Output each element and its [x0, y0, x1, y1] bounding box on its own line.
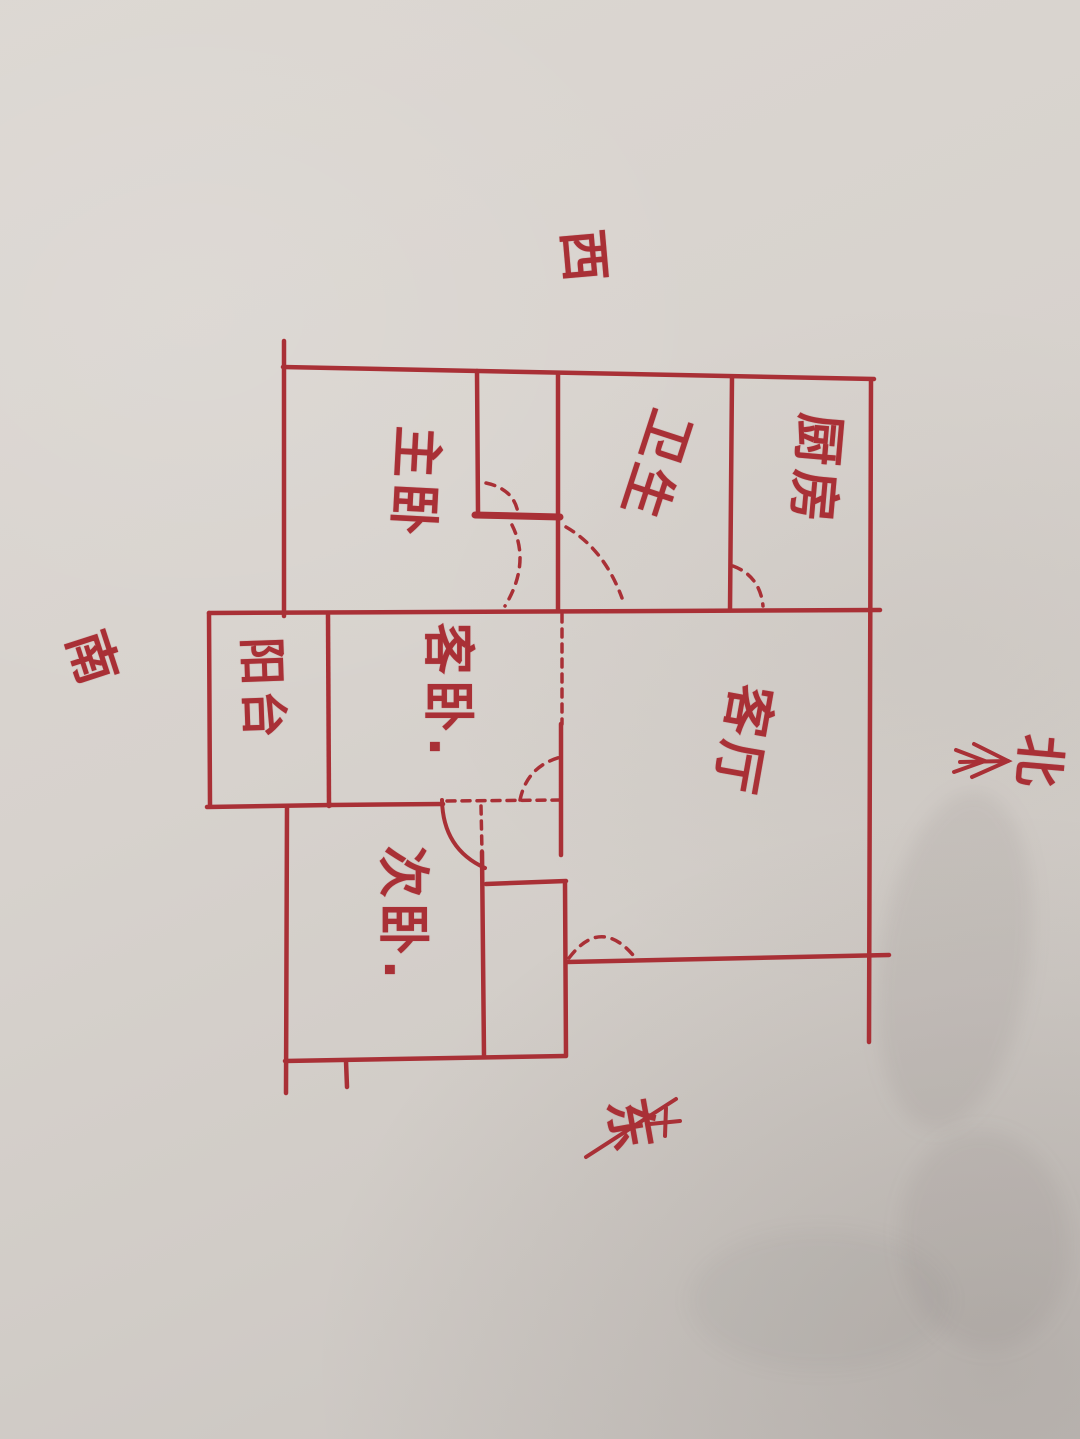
wall-nook-left	[477, 371, 478, 512]
wall-second-left	[286, 806, 287, 1093]
compass-west: 西	[555, 227, 612, 288]
door-arc-entrance	[569, 937, 633, 958]
door-arc-nook	[486, 483, 518, 513]
door-arc-guest	[520, 757, 561, 800]
wall-alcove-right	[565, 882, 566, 1056]
floor-plan-photo: 主卧 卫生 厨房 阳台 客卧. 客厅 次卧. 西 南 北 东	[0, 0, 1080, 1439]
compass-north: 北	[1010, 732, 1067, 793]
wall-top	[283, 367, 874, 379]
wall-balcony-left	[209, 613, 210, 806]
wall-second-right-open	[481, 806, 482, 852]
wall-second-bottom	[285, 1056, 565, 1061]
label-master-bedroom: 主卧	[385, 425, 443, 542]
north-arrow-icon	[954, 744, 1008, 777]
wall-second-right	[482, 852, 484, 1056]
wall-living-bottom	[567, 955, 889, 962]
wall-nook-bottom	[475, 515, 560, 517]
wall-right	[869, 380, 871, 1042]
door-arc-kitchen	[733, 566, 763, 606]
door-arc-bathroom	[566, 527, 622, 598]
wall-bottom-tick	[346, 1061, 347, 1087]
wall-balcony-bottom	[207, 805, 331, 807]
wall-guest-bottom	[331, 804, 443, 805]
wall-kitchen-divider	[730, 377, 732, 610]
wall-middle	[209, 610, 880, 613]
compass-east: 东	[599, 1094, 660, 1159]
door-arc-master	[505, 525, 520, 606]
floor-plan-linework	[0, 0, 1080, 1439]
label-balcony: 阳台	[236, 636, 288, 744]
wall-alcove-top	[486, 881, 566, 884]
wall-guest-bottom-open	[447, 800, 560, 801]
label-second-bedroom: 次卧.	[376, 846, 428, 985]
door-arc-second	[442, 800, 485, 868]
label-guest-bedroom: 客卧.	[421, 623, 473, 762]
wall-balcony-right	[328, 615, 329, 806]
label-kitchen: 厨房	[784, 411, 846, 529]
